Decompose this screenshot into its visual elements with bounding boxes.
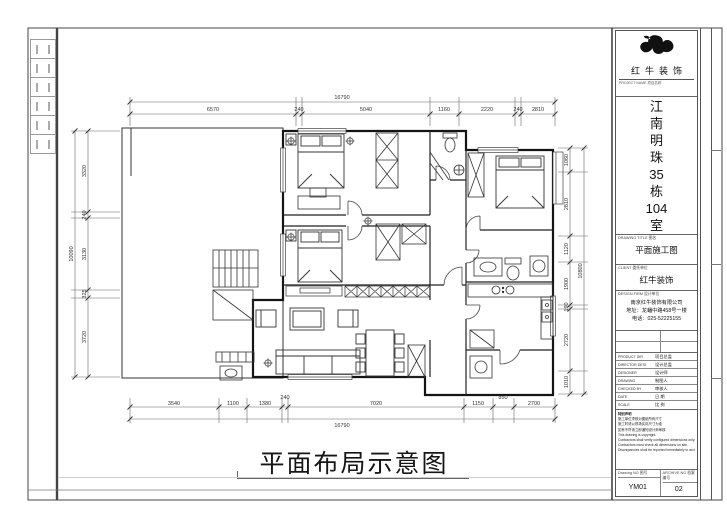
dim-label: 1100 xyxy=(227,401,239,407)
index-strip-cell xyxy=(30,96,56,116)
dim-label: 190 xyxy=(564,302,570,311)
revision-cell xyxy=(661,342,697,353)
project-char: 江 xyxy=(650,99,663,114)
index-strip-cell xyxy=(30,134,56,154)
drawing-title-label: DRAWING TITLE 图名 xyxy=(618,236,697,241)
bathroom-top-fixtures xyxy=(430,133,464,180)
dim-label: 1010 xyxy=(564,376,570,388)
personnel-row: PRODUCT DIR 项目总监 xyxy=(616,353,697,361)
margin-column-line xyxy=(700,28,701,500)
dim-label: 3320 xyxy=(82,165,88,177)
personnel-row: DIRECTOR DESI 设计总监 xyxy=(616,361,697,369)
project-char: 35 xyxy=(649,167,663,182)
dim-label: 3720 xyxy=(82,331,88,343)
drawing-area-baseline xyxy=(58,477,611,478)
drawing-no-label: Drawing NO 图号 xyxy=(618,471,660,478)
dim-label: 5040 xyxy=(360,107,372,113)
design-firm-phone: 电话：025-52225155 xyxy=(616,315,697,323)
dim-label: 2700 xyxy=(528,401,540,407)
drawing-sheet: 16790 6570 240 5040 1160 2220 240 2810 3… xyxy=(0,0,727,509)
brand-divider xyxy=(619,79,694,80)
revision-table xyxy=(616,331,697,353)
title-block: 红牛装饰 PROJECT NAME 项目名称 江 南 明 珠 35 栋 104 … xyxy=(615,30,698,497)
revision-cell xyxy=(616,342,661,353)
stairs-icon xyxy=(213,250,258,380)
dim-label: 325 xyxy=(82,289,88,298)
client-label: CLIENT 委托单位 xyxy=(618,266,697,271)
dim-top-overall: 16790 xyxy=(334,95,349,101)
project-char: 南 xyxy=(650,116,663,131)
drawing-title-value: 平面施工图 xyxy=(616,244,697,256)
index-strip-cell xyxy=(30,77,56,97)
dim-label: 1900 xyxy=(564,278,570,290)
dim-label: 240 xyxy=(280,395,289,401)
design-firm-name: 南京红牛装饰有限公司 xyxy=(616,299,697,307)
dim-label: 3540 xyxy=(168,401,180,407)
dim-label: 1060 xyxy=(564,154,570,166)
dim-label: 2220 xyxy=(481,107,493,113)
dim-label: 1160 xyxy=(438,107,450,113)
drawing-no-cell: Drawing NO 图号 YM01 xyxy=(616,470,661,496)
project-char: 栋 xyxy=(650,184,663,199)
archive-no-label: ARCHIVE NO 档案编号 xyxy=(663,471,697,483)
page-title: 平面布局示意图 xyxy=(240,444,468,480)
dim-bottom-overall: 16790 xyxy=(334,423,349,429)
client-value: 红牛装饰 xyxy=(616,274,697,286)
dim-label: 2810 xyxy=(564,198,570,210)
fold-tick xyxy=(711,150,721,151)
brand-logo-icon xyxy=(635,33,679,63)
brand-name: 红牛装饰 xyxy=(626,64,687,77)
dim-label: 240 xyxy=(82,210,88,219)
bathroom-right-fixtures xyxy=(474,256,548,280)
note-line: Discrepancies shall be reported immediat… xyxy=(618,448,695,453)
dim-label: 1150 xyxy=(472,401,484,407)
dim-label: 240 xyxy=(513,107,522,113)
dim-right-overall: 10800 xyxy=(578,263,584,278)
index-strip-cell xyxy=(30,39,56,59)
dim-label: 7020 xyxy=(370,401,382,407)
archive-no-value: 02 xyxy=(661,483,697,496)
fixture-symbols xyxy=(264,137,373,368)
title-underline xyxy=(237,478,469,479)
tv-cabinet-row xyxy=(286,286,430,297)
index-strip xyxy=(30,40,56,154)
project-name-label: PROJECT NAME 项目名称 xyxy=(619,81,661,86)
interior-walls xyxy=(283,131,553,395)
project-char: 室 xyxy=(650,218,663,233)
dim-label: 1120 xyxy=(564,243,570,255)
dim-left-overall: 10090 xyxy=(69,246,75,261)
index-strip-cell xyxy=(30,58,56,78)
desk-icon xyxy=(298,188,340,209)
revision-cell xyxy=(616,331,661,342)
personnel-row: DRAWING 制图人 xyxy=(616,377,697,385)
drawing-number-section: Drawing NO 图号 YM01 ARCHIVE NO 档案编号 02 xyxy=(616,470,697,496)
sofa-set xyxy=(256,308,360,374)
revision-cell xyxy=(661,331,697,342)
client-section: CLIENT 委托单位 红牛装饰 xyxy=(616,265,697,291)
dim-label: 3130 xyxy=(82,248,88,260)
kitchen-fixtures xyxy=(468,284,553,378)
personnel-table: PRODUCT DIR 项目总监 DIRECTOR DESI 设计总监 DESI… xyxy=(616,353,697,410)
project-name: 江 南 明 珠 35 栋 104 室 xyxy=(616,97,697,235)
archive-no-cell: ARCHIVE NO 档案编号 02 xyxy=(661,470,697,496)
design-firm-section: DESIGN FIRM 设计单位 南京红牛装饰有限公司 地址：龙蟠中路458号一… xyxy=(616,291,697,331)
fold-tick xyxy=(711,378,721,379)
design-firm-address: 地址：龙蟠中路458号一楼 xyxy=(616,307,697,315)
project-char: 104 xyxy=(646,201,668,216)
title-block-logo-section: 红牛装饰 PROJECT NAME 项目名称 xyxy=(616,31,697,97)
project-char: 珠 xyxy=(650,150,663,165)
dim-label: 2810 xyxy=(532,107,544,113)
dining-set xyxy=(356,330,404,376)
personnel-row: DESIGNER 设计师 xyxy=(616,369,697,377)
personnel-row: DATE 日 期 xyxy=(616,393,697,401)
drawing-title-section: DRAWING TITLE 图名 平面施工图 xyxy=(616,235,697,265)
dim-label: 240 xyxy=(294,107,303,113)
dim-label: 2720 xyxy=(564,334,570,346)
project-char: 明 xyxy=(650,133,663,148)
drawing-no-value: YM01 xyxy=(616,478,660,496)
dim-label: 850 xyxy=(498,395,507,401)
index-strip-cell xyxy=(30,115,56,135)
design-firm-label: DESIGN FIRM 设计单位 xyxy=(618,292,697,297)
personnel-row: CHECKED BY 审核人 xyxy=(616,385,697,393)
dim-label: 1380 xyxy=(259,401,271,407)
dim-label: 6570 xyxy=(207,107,219,113)
fold-tick xyxy=(711,264,721,265)
terrace-outline xyxy=(122,128,283,378)
personnel-row: SCALE 比 例 xyxy=(616,401,697,409)
notes-block: 特别声明 施工单位须核对图纸所有尺寸 施工时请以现场实际尺寸为准 如有不符请立即… xyxy=(616,410,697,470)
